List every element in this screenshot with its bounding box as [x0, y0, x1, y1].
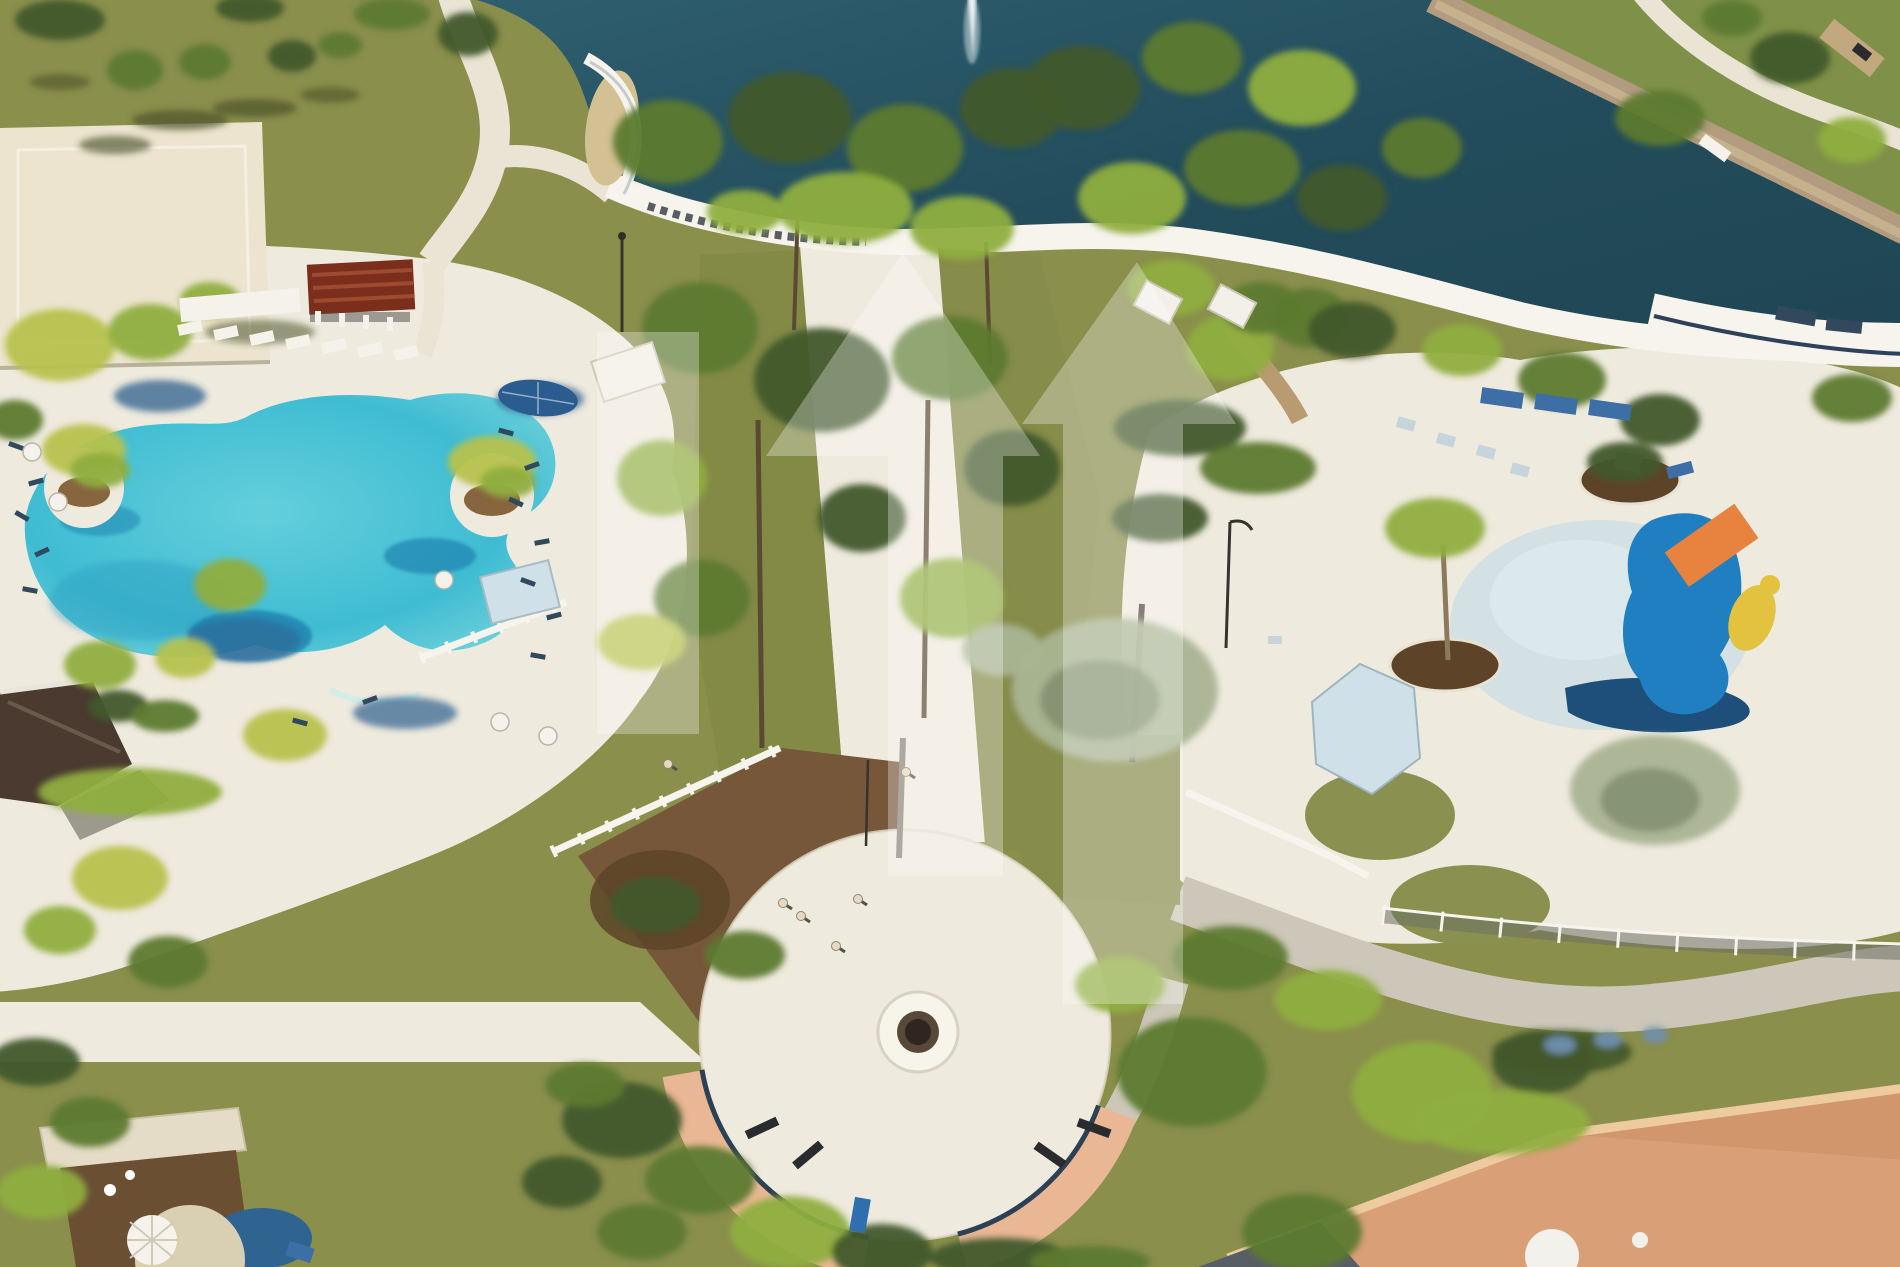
tree-blob [1078, 162, 1186, 234]
splash-yellow-detail [1760, 575, 1780, 595]
tree-blob [5, 309, 115, 381]
tree-blob [114, 380, 206, 412]
tree-blob [64, 641, 136, 689]
kiosk-detail-2 [125, 1170, 135, 1180]
tree-blob [1812, 374, 1892, 422]
pergola-group [307, 259, 415, 322]
tree-blob [194, 559, 266, 611]
path-court-to-pool [422, 262, 434, 354]
patio-table [49, 493, 67, 511]
tree-blob [1702, 0, 1762, 36]
furniture-item [315, 311, 321, 325]
tree-blob [1422, 324, 1502, 376]
tree-blob [243, 709, 327, 761]
pool-tree-shadow-2 [384, 538, 476, 574]
tree-blob [24, 906, 96, 954]
tree-blob [1242, 1194, 1362, 1267]
tree-blob [545, 1063, 625, 1107]
furniture-item [1268, 636, 1282, 644]
aerial-photo [0, 0, 1900, 1267]
tree-blob [1200, 442, 1316, 494]
tree-blob [1620, 394, 1700, 446]
patio-table [435, 571, 453, 589]
tree-blob [1382, 118, 1462, 178]
fountain-core [905, 1019, 931, 1045]
tree-blob [70, 452, 130, 488]
tree-blob [0, 1165, 87, 1219]
tree-blob [1172, 926, 1288, 990]
tree-blob [155, 638, 215, 678]
tree-blob [1297, 165, 1387, 231]
tree-blob [1184, 130, 1300, 206]
patio-table [539, 727, 557, 745]
tree-blob [705, 931, 785, 979]
patio-table [491, 713, 509, 731]
tree-blob [1024, 46, 1140, 130]
tree-blob [30, 74, 90, 90]
tree-blob [730, 1196, 850, 1267]
pergola-shadow [310, 312, 410, 322]
tree-blob [300, 87, 360, 103]
tree-blob [131, 700, 199, 732]
tree-blob [50, 1097, 130, 1147]
kiosk-detail-1 [104, 1184, 116, 1196]
lower-left-path [0, 1002, 706, 1062]
person-dot [779, 899, 788, 908]
tree-blob [597, 1204, 687, 1260]
tree-blob [1414, 1090, 1590, 1154]
tree-blob [179, 44, 231, 80]
tree-blob [1642, 1027, 1668, 1043]
person-dot [664, 760, 673, 769]
tree-blob [613, 100, 723, 184]
tree-blob [910, 196, 1014, 260]
person-dot [797, 912, 806, 921]
tree-blob [1587, 442, 1663, 482]
tree-blob [72, 846, 168, 910]
tree-blob [1600, 768, 1700, 832]
person-dot [854, 895, 863, 904]
person-dot [832, 942, 841, 951]
furniture-item [339, 313, 345, 327]
tree-blob [132, 110, 228, 130]
tree-blob [1308, 302, 1396, 358]
tree-blob [438, 12, 498, 56]
roof-vent-small [1632, 1232, 1648, 1248]
tree-blob [480, 466, 536, 498]
tree-blob [707, 190, 783, 234]
watermark-bar-icon [597, 332, 699, 734]
tree-blob [1274, 970, 1382, 1030]
tree-blob [1750, 32, 1830, 84]
tree-blob [645, 1146, 755, 1214]
furniture-item [387, 317, 393, 331]
tree-blob [1594, 1032, 1622, 1048]
tree-blob [1385, 498, 1485, 558]
tree-blob [728, 72, 852, 164]
tree-blob [15, 0, 105, 40]
tree-blob [522, 1156, 602, 1208]
tree-blob [107, 50, 163, 90]
tree-blob [268, 40, 316, 72]
tree-blob [1142, 22, 1242, 94]
tree-blob [1248, 50, 1356, 126]
tree-blob [38, 768, 222, 816]
tree-blob [1615, 90, 1705, 146]
aerial-photo-stage [0, 0, 1900, 1267]
tree-blob [79, 136, 151, 154]
patio-table [23, 443, 41, 461]
light-post-1-head [618, 232, 626, 240]
tree-blob [1117, 1017, 1267, 1127]
tree-blob [1818, 117, 1886, 163]
tree-blob [777, 172, 913, 244]
tree-blob [318, 32, 362, 58]
tree-blob [1544, 1036, 1576, 1054]
furniture-item [363, 315, 369, 329]
tree-blob [128, 936, 208, 988]
tree-blob [213, 99, 297, 117]
tree-blob [610, 877, 700, 933]
